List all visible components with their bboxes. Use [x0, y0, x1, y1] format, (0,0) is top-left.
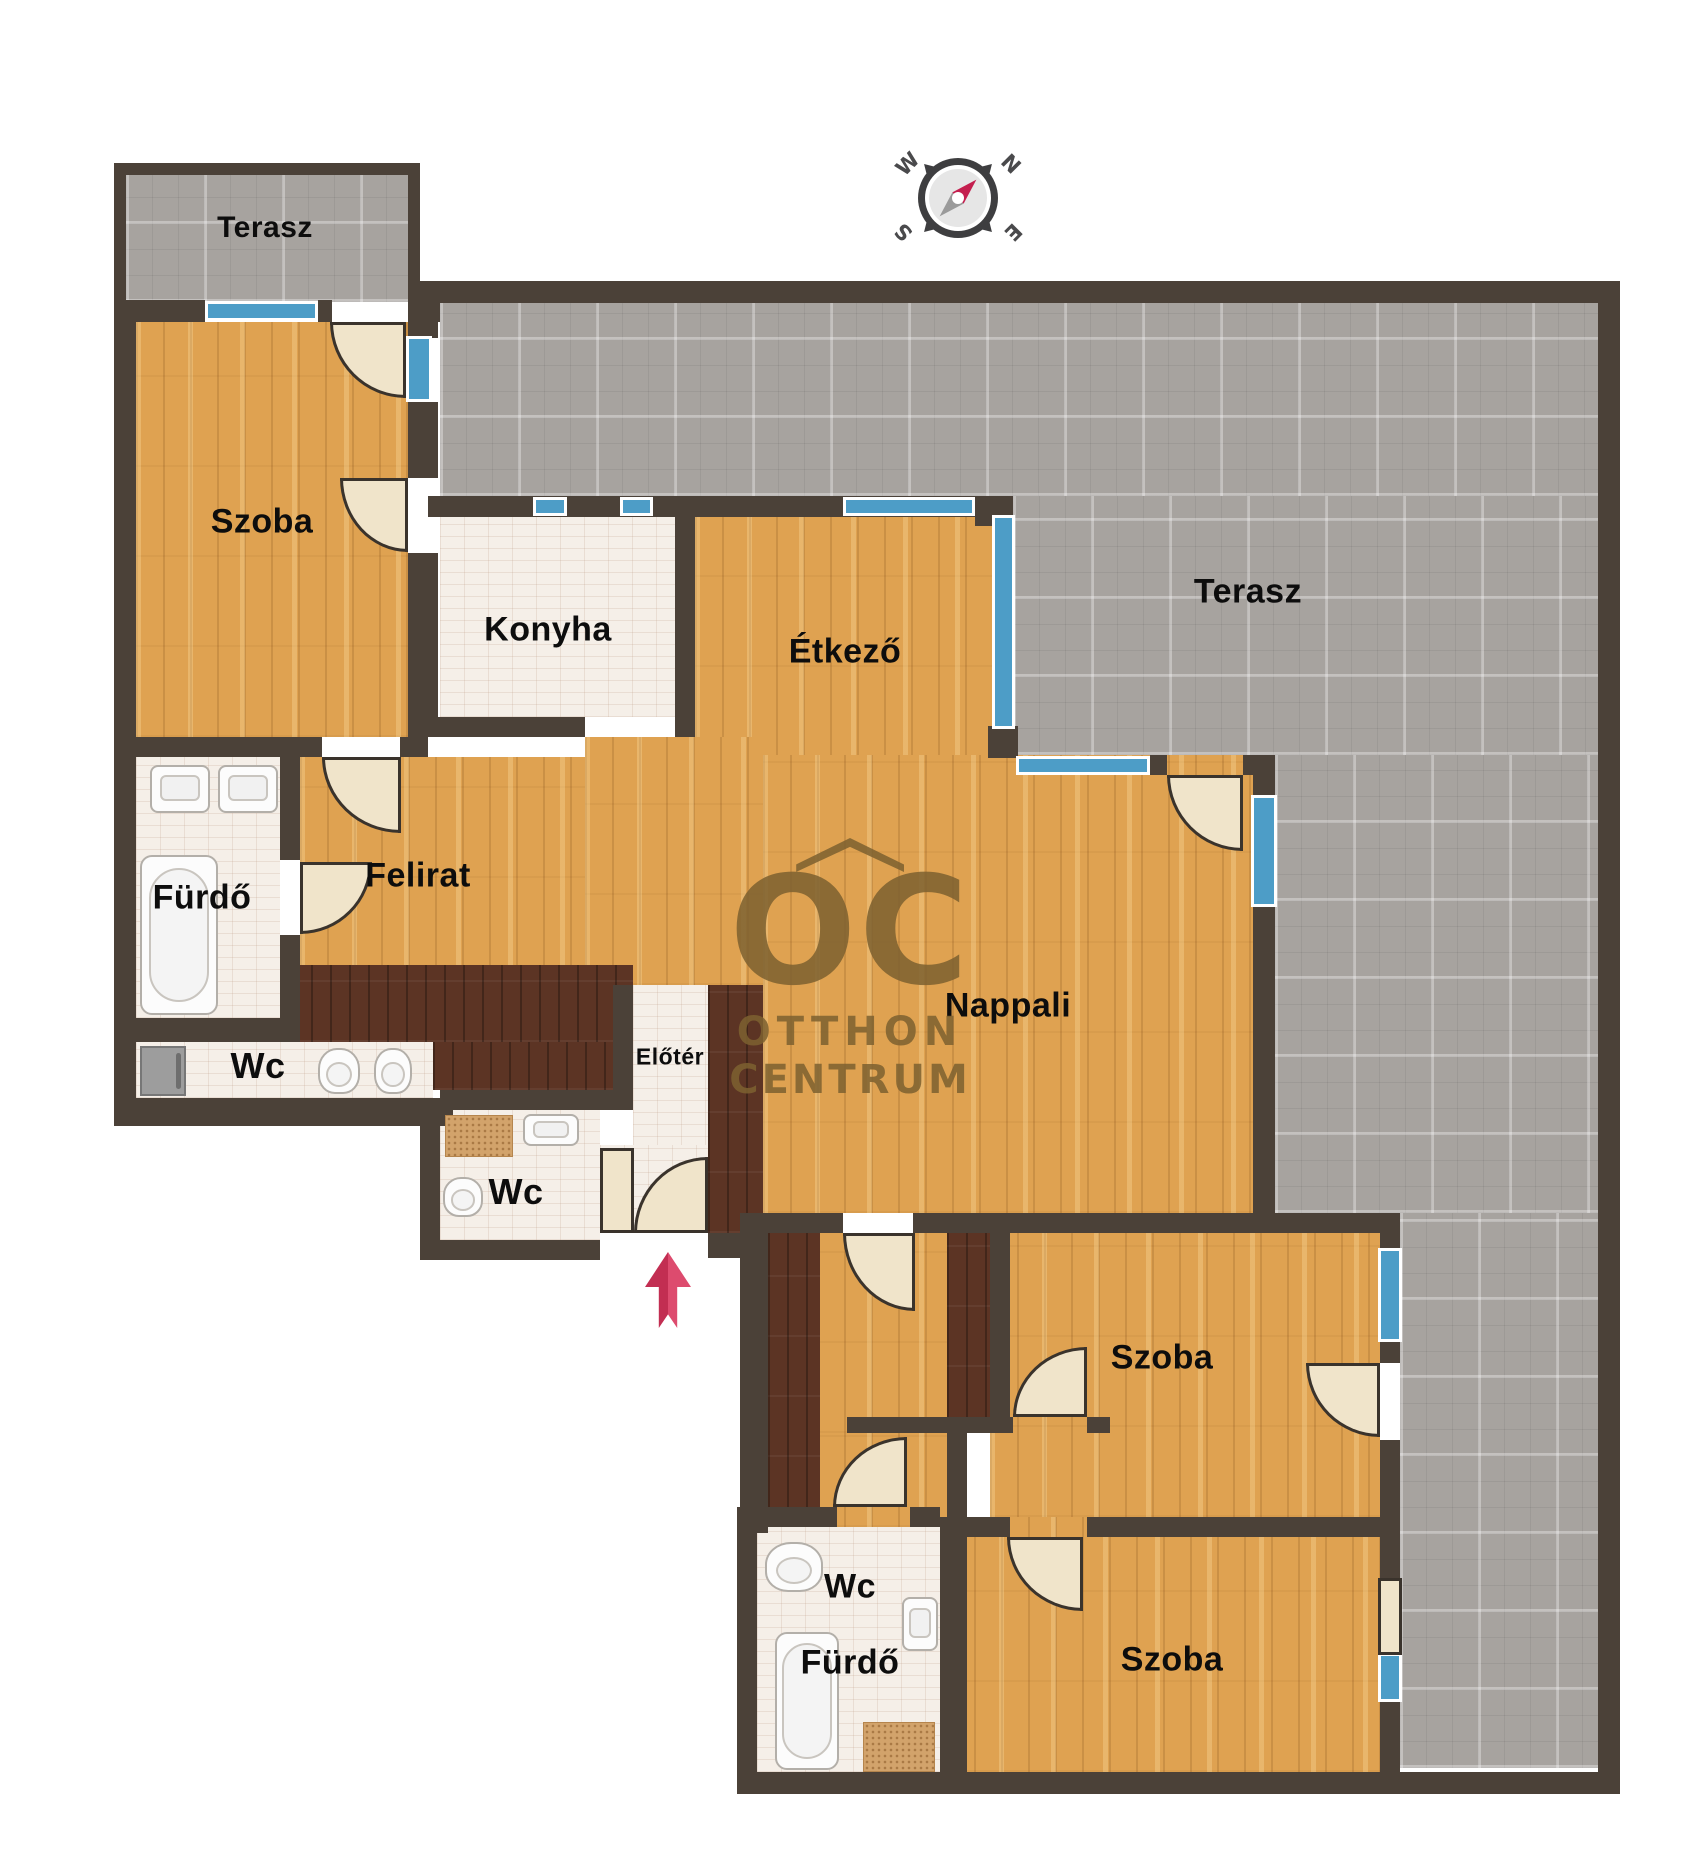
- room-label-bedroom-bottom: Szoba: [1121, 1641, 1224, 1680]
- room-label-terrace-top: Terasz: [217, 211, 313, 245]
- wardrobe-strip: [947, 1233, 990, 1427]
- room-label-wc-bottom: Wc: [824, 1568, 876, 1607]
- sink: [523, 1114, 579, 1146]
- window: [406, 336, 432, 402]
- sink: [150, 765, 210, 813]
- room-label-terrace-right: Terasz: [1194, 573, 1302, 612]
- window: [992, 515, 1015, 729]
- mat: [863, 1722, 935, 1772]
- otthon-centrum-logo: OC OTTHON CENTRUM: [729, 838, 971, 1103]
- floor-plan: Terasz Terasz Szoba Konyha Étkező Fürdő …: [0, 0, 1700, 1860]
- window: [205, 301, 318, 321]
- room-label-wc-left: Wc: [231, 1045, 286, 1087]
- room-label-bedroom-topleft: Szoba: [211, 503, 314, 542]
- toilet: [765, 1542, 823, 1592]
- logo-letters: OC: [729, 874, 971, 991]
- window: [1378, 1653, 1402, 1702]
- room-label-foyer: Előtér: [636, 1044, 704, 1071]
- sink: [902, 1597, 938, 1651]
- toilet: [443, 1177, 483, 1217]
- toilet: [318, 1048, 360, 1094]
- wardrobe-strip: [768, 1233, 820, 1517]
- mat: [445, 1115, 513, 1157]
- door: [1378, 1578, 1402, 1655]
- window: [1251, 795, 1277, 907]
- room-label-dining: Étkező: [789, 633, 902, 672]
- window: [533, 497, 567, 516]
- washing-machine: [140, 1046, 186, 1096]
- entrance-door-leaf: [600, 1148, 634, 1233]
- logo-line2: CENTRUM: [729, 1057, 971, 1103]
- window: [843, 497, 975, 516]
- compass-icon: W N S E: [888, 128, 1028, 268]
- window: [620, 497, 653, 516]
- room-label-wc-middle: Wc: [489, 1171, 544, 1213]
- terrace-right-floor: [1275, 755, 1598, 1213]
- room-label-kitchen: Konyha: [484, 611, 612, 650]
- room-label-bathroom-bottom: Fürdő: [801, 1644, 900, 1683]
- room-label-hall: Felirat: [365, 857, 471, 896]
- room-label-bedroom-middle: Szoba: [1111, 1339, 1214, 1378]
- entrance-arrow-icon: [645, 1252, 691, 1328]
- wardrobe-strip: [292, 965, 633, 1042]
- wardrobe-strip: [433, 1042, 633, 1090]
- window: [1378, 1248, 1402, 1342]
- terrace-right-floor: [1400, 1213, 1598, 1768]
- bidet: [374, 1048, 412, 1094]
- room-label-bathroom-left: Fürdő: [153, 879, 252, 918]
- logo-line1: OTTHON: [729, 1009, 971, 1055]
- terrace-right-floor: [440, 303, 1598, 496]
- sink: [218, 765, 278, 813]
- terrace-right-floor: [1013, 496, 1598, 755]
- window: [1016, 756, 1150, 775]
